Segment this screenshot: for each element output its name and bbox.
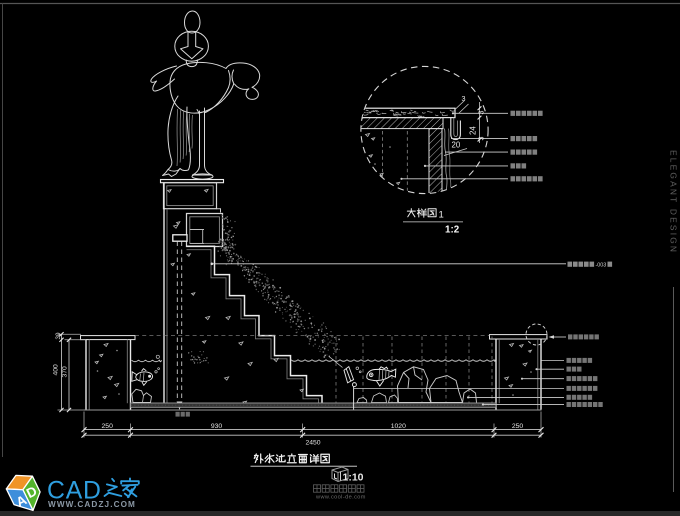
svg-text:250: 250 bbox=[102, 423, 114, 430]
svg-text:30: 30 bbox=[55, 332, 62, 339]
svg-text:400: 400 bbox=[53, 364, 60, 376]
svg-text:WWW.CADZJ.COM: WWW.CADZJ.COM bbox=[48, 500, 136, 509]
svg-text:3: 3 bbox=[477, 111, 486, 115]
svg-text:-003: -003 bbox=[596, 262, 607, 268]
svg-text:www.cool-de.com: www.cool-de.com bbox=[315, 494, 366, 500]
svg-text:250: 250 bbox=[512, 423, 524, 430]
svg-text:2450: 2450 bbox=[305, 440, 320, 447]
svg-text:20: 20 bbox=[452, 141, 461, 150]
svg-text:ELEGANT DESIGN: ELEGANT DESIGN bbox=[669, 150, 679, 254]
svg-text:1:10: 1:10 bbox=[343, 472, 364, 484]
svg-text:1: 1 bbox=[439, 209, 444, 220]
svg-text:1:2: 1:2 bbox=[445, 225, 460, 236]
svg-text:3: 3 bbox=[477, 137, 486, 141]
svg-text:24: 24 bbox=[469, 126, 478, 135]
svg-text:1020: 1020 bbox=[391, 423, 406, 430]
svg-text:370: 370 bbox=[62, 366, 69, 378]
svg-text:930: 930 bbox=[211, 423, 223, 430]
